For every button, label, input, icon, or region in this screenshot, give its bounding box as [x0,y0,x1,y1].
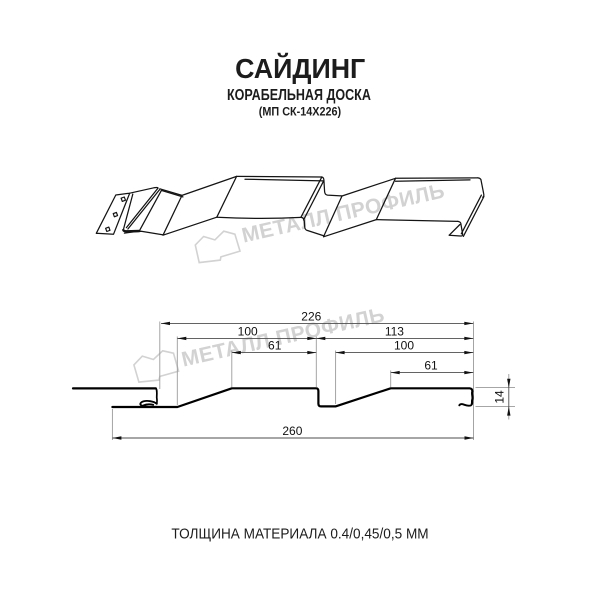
svg-text:113: 113 [385,324,404,338]
svg-text:КОРАБЕЛЬНАЯ ДОСКА: КОРАБЕЛЬНАЯ ДОСКА [227,87,371,105]
svg-text:(МП СК-14Х226): (МП СК-14Х226) [259,106,341,119]
svg-text:МЕТАЛЛ ПРОФИЛЬ: МЕТАЛЛ ПРОФИЛЬ [240,180,447,248]
svg-text:61: 61 [268,339,282,353]
svg-text:226: 226 [301,309,321,323]
svg-text:14: 14 [493,390,507,404]
svg-text:ТОЛЩИНА МАТЕРИАЛА 0.4/0,45/0,5: ТОЛЩИНА МАТЕРИАЛА 0.4/0,45/0,5 ММ [171,525,428,541]
svg-text:МЕТАЛЛ ПРОФИЛЬ: МЕТАЛЛ ПРОФИЛЬ [179,304,386,372]
svg-text:100: 100 [394,339,414,353]
svg-text:100: 100 [238,324,258,338]
svg-text:САЙДИНГ: САЙДИНГ [235,51,365,84]
svg-text:260: 260 [282,424,302,438]
svg-text:61: 61 [424,359,438,373]
